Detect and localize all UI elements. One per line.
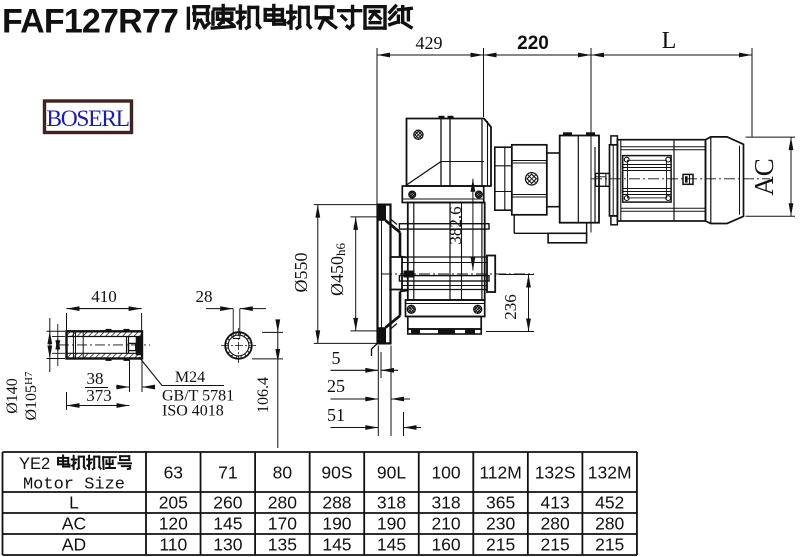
svg-text:429: 429 — [416, 33, 443, 53]
svg-text:373: 373 — [86, 386, 112, 405]
svg-text:413: 413 — [541, 493, 570, 513]
svg-text:FAF127R77: FAF127R77 — [2, 3, 178, 41]
svg-text:365: 365 — [486, 493, 515, 513]
svg-text:215: 215 — [541, 535, 570, 555]
svg-text:280: 280 — [595, 514, 624, 534]
svg-text:Ø105H7: Ø105H7 — [23, 371, 40, 421]
svg-text:M24: M24 — [175, 369, 205, 386]
svg-text:100: 100 — [431, 463, 460, 483]
svg-text:318: 318 — [377, 493, 406, 513]
svg-text:Ø140: Ø140 — [4, 378, 21, 414]
svg-text:452: 452 — [595, 493, 624, 513]
svg-text:Ø450h6: Ø450h6 — [327, 243, 348, 297]
svg-text:63: 63 — [164, 463, 183, 483]
svg-text:L: L — [662, 28, 677, 54]
svg-text:132S: 132S — [535, 463, 576, 483]
svg-text:71: 71 — [218, 463, 237, 483]
svg-text:210: 210 — [431, 514, 460, 534]
svg-text:112M: 112M — [479, 463, 521, 483]
svg-text:80: 80 — [273, 463, 293, 483]
svg-text:ISO 4018: ISO 4018 — [162, 403, 224, 420]
svg-text:BOSERL: BOSERL — [46, 106, 128, 132]
svg-text:288: 288 — [322, 493, 351, 513]
svg-text:130: 130 — [213, 535, 242, 555]
svg-text:215: 215 — [595, 535, 624, 555]
svg-text:AC: AC — [62, 514, 86, 534]
svg-text:28: 28 — [196, 287, 213, 306]
svg-text:410: 410 — [91, 287, 117, 306]
svg-text:280: 280 — [268, 493, 297, 513]
svg-text:132M: 132M — [588, 463, 632, 483]
svg-text:25: 25 — [327, 376, 345, 396]
svg-text:145: 145 — [213, 514, 242, 534]
svg-text:280: 280 — [541, 514, 570, 534]
svg-text:170: 170 — [268, 514, 297, 534]
svg-text:205: 205 — [159, 493, 188, 513]
svg-text:120: 120 — [159, 514, 188, 534]
svg-text:135: 135 — [268, 535, 297, 555]
svg-text:5: 5 — [332, 348, 341, 368]
svg-text:145: 145 — [322, 535, 351, 555]
svg-text:160: 160 — [431, 535, 460, 555]
svg-text:51: 51 — [327, 405, 345, 425]
svg-text:90L: 90L — [377, 463, 406, 483]
svg-text:AD: AD — [62, 535, 86, 555]
svg-text:AC: AC — [749, 158, 779, 196]
svg-text:382.6: 382.6 — [446, 206, 465, 244]
svg-text:260: 260 — [213, 493, 242, 513]
svg-text:YE2: YE2 — [19, 455, 50, 473]
svg-text:90S: 90S — [321, 463, 352, 483]
svg-text:236: 236 — [501, 294, 520, 320]
svg-text:220: 220 — [517, 33, 549, 54]
svg-text:110: 110 — [159, 535, 187, 555]
svg-text:145: 145 — [377, 535, 406, 555]
svg-text:106.4: 106.4 — [255, 377, 272, 413]
svg-text:190: 190 — [377, 514, 406, 534]
svg-text:215: 215 — [486, 535, 515, 555]
svg-text:318: 318 — [431, 493, 460, 513]
svg-text:L: L — [69, 493, 79, 513]
svg-text:190: 190 — [322, 514, 351, 534]
svg-text:230: 230 — [486, 514, 515, 534]
svg-text:Ø550: Ø550 — [291, 253, 311, 293]
